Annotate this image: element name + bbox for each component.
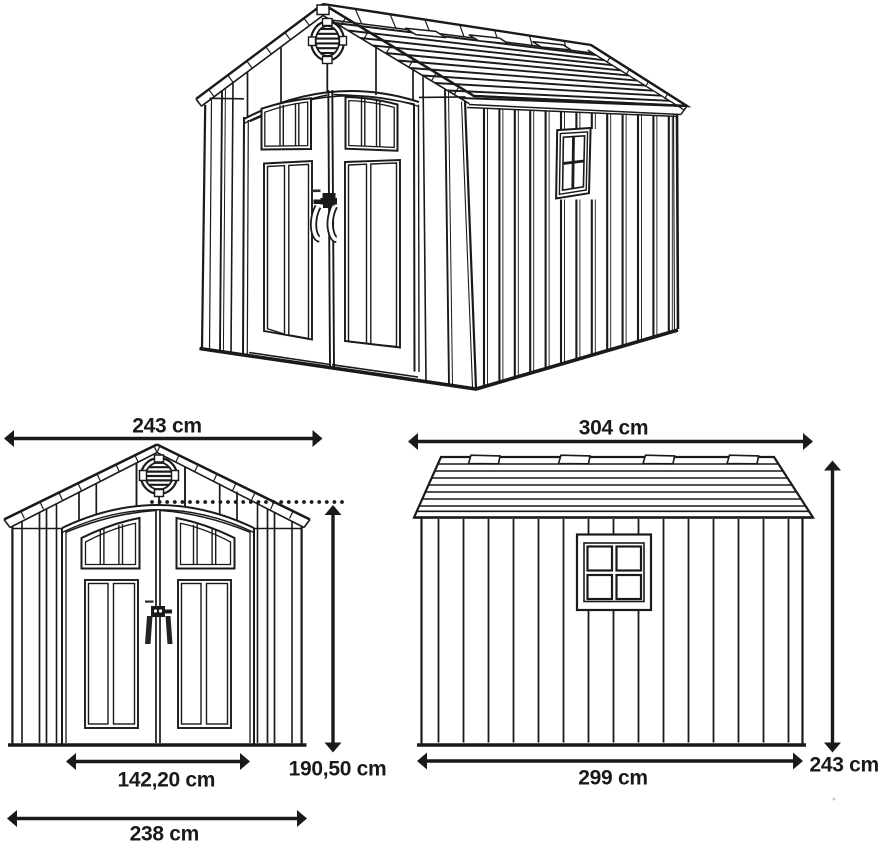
svg-text:142,20 cm: 142,20 cm — [117, 769, 215, 792]
svg-text:299 cm: 299 cm — [578, 767, 647, 790]
svg-text:243 cm: 243 cm — [132, 415, 201, 438]
svg-text:243 cm: 243 cm — [810, 754, 879, 777]
svg-text:190,50 cm: 190,50 cm — [289, 758, 387, 781]
svg-text:304 cm: 304 cm — [579, 417, 648, 440]
svg-text:238 cm: 238 cm — [130, 823, 199, 846]
